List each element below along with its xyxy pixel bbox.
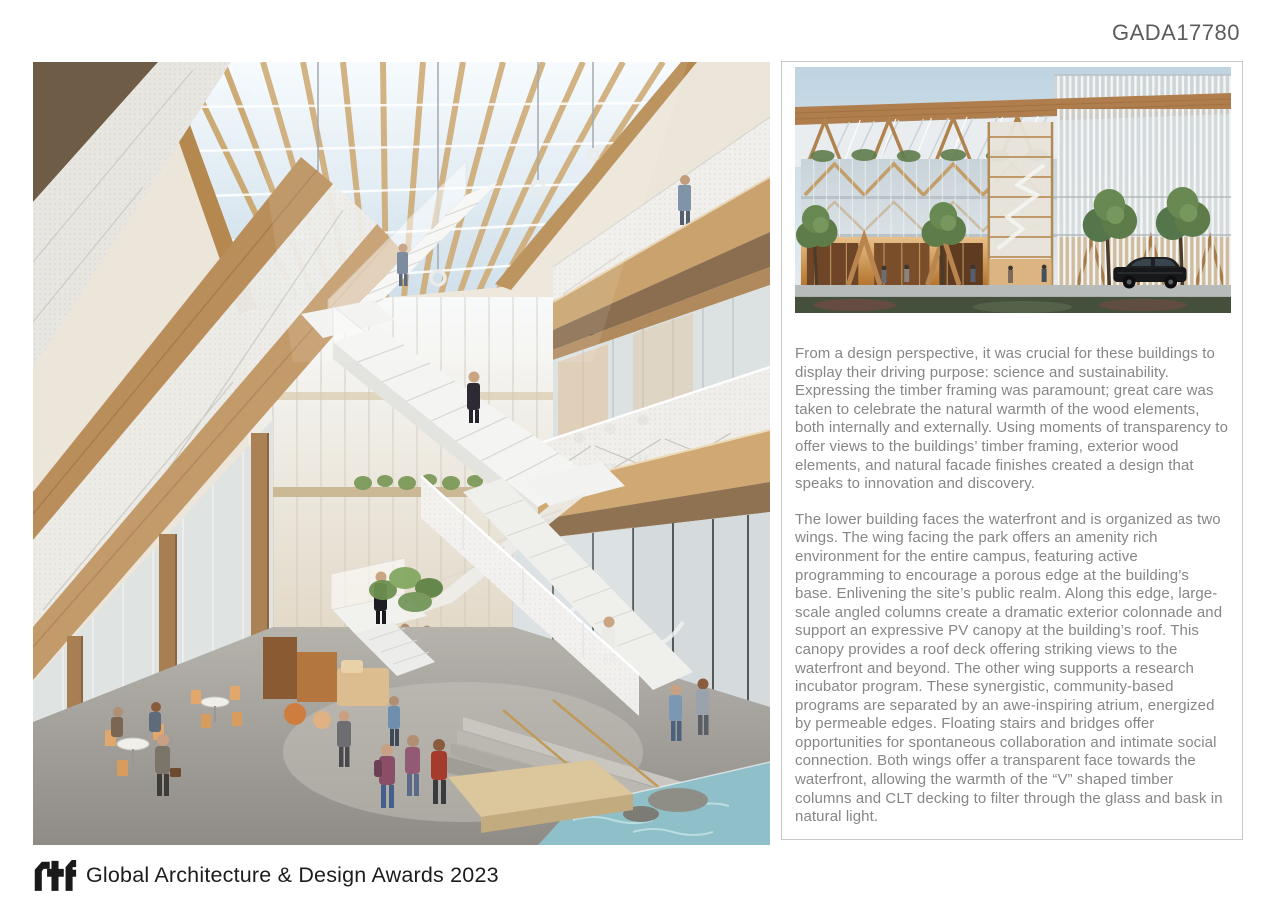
interior-atrium-illustration: [33, 62, 770, 845]
rtf-logo-text: rtf: [33, 892, 34, 893]
description-paragraph-1: From a design perspective, it was crucia…: [795, 345, 1228, 494]
project-description: From a design perspective, it was crucia…: [795, 345, 1228, 844]
rtf-logo: rtf: [33, 858, 77, 892]
description-paragraph-2: The lower building faces the waterfront …: [795, 511, 1228, 827]
rtf-logo-icon: [33, 858, 77, 892]
submission-code: GADA17780: [1112, 20, 1240, 46]
exterior-render: [795, 67, 1231, 313]
footer: rtf Global Architecture & Design Awards …: [33, 855, 499, 895]
planting-strip: [795, 297, 1231, 313]
sidewalk: [795, 285, 1231, 297]
interior-atrium-render: [33, 62, 770, 845]
right-panel: From a design perspective, it was crucia…: [781, 61, 1243, 840]
award-title: Global Architecture & Design Awards 2023: [86, 863, 499, 888]
exterior-elevation-illustration: [795, 67, 1231, 313]
atrium-bay: [989, 122, 1052, 285]
